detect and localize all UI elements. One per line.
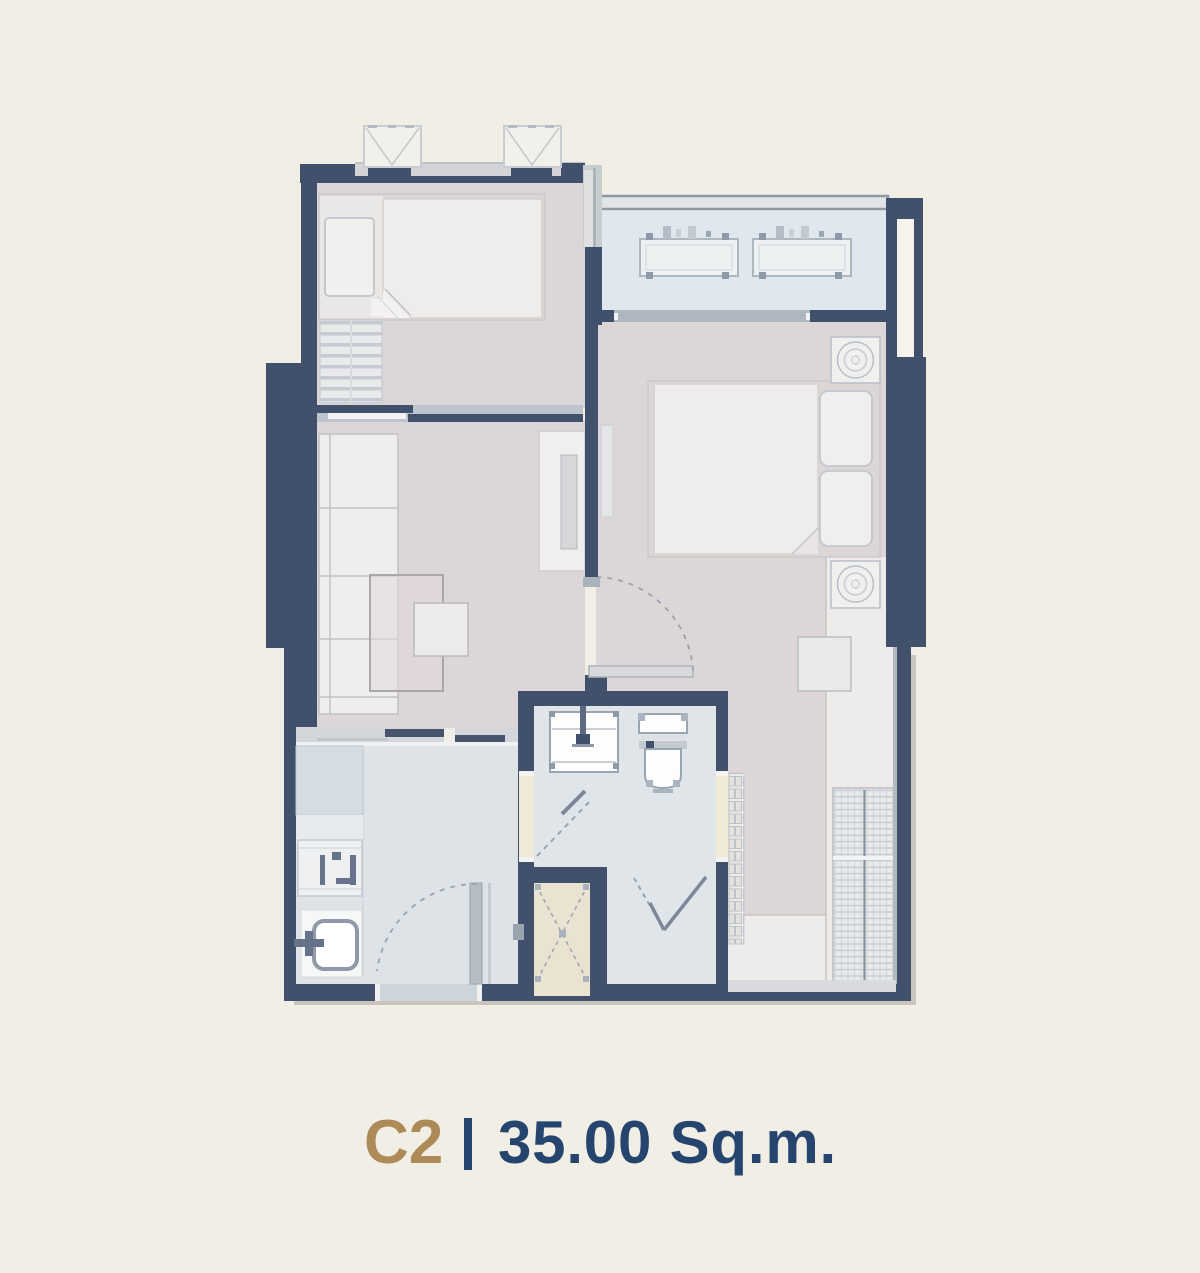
svg-text:35.00 Sq.m.: 35.00 Sq.m. <box>498 1109 837 1176</box>
svg-text:C2: C2 <box>364 1108 443 1177</box>
